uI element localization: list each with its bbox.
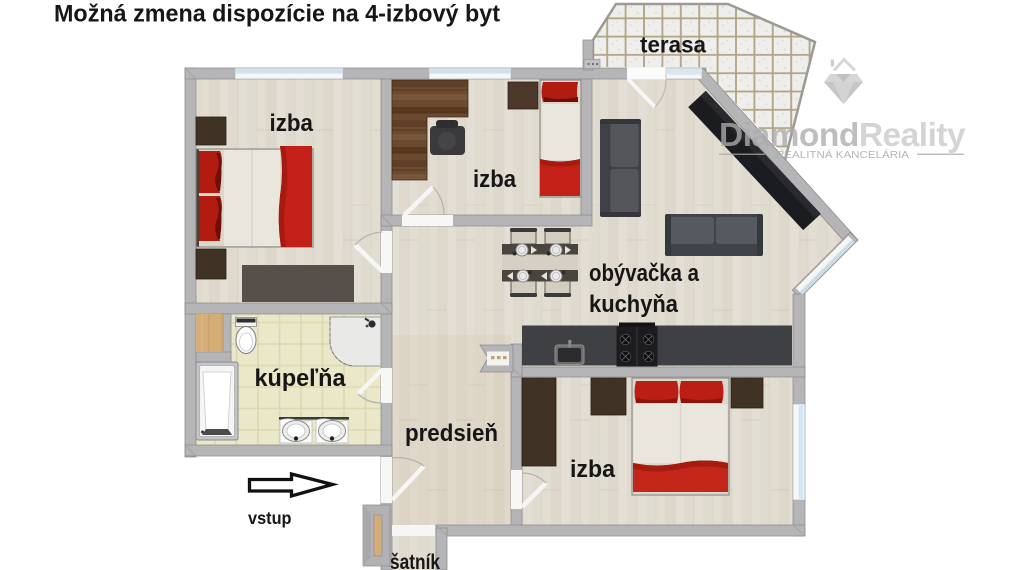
- svg-text:REALITNÁ KANCELÁRIA: REALITNÁ KANCELÁRIA: [776, 148, 909, 161]
- svg-text:šatník: šatník: [390, 551, 440, 570]
- svg-text:predsieň: predsieň: [405, 420, 498, 447]
- svg-text:izba: izba: [570, 456, 615, 483]
- svg-text:izba: izba: [270, 110, 314, 137]
- svg-text:izba: izba: [473, 166, 516, 193]
- svg-text:DiamondReality: DiamondReality: [719, 117, 966, 154]
- svg-text:Možná zmena dispozície na 4-iz: Možná zmena dispozície na 4-izbový byt: [54, 1, 500, 28]
- svg-text:vstup: vstup: [248, 508, 292, 528]
- svg-text:obývačka a: obývačka a: [589, 260, 699, 287]
- svg-text:kuchyňa: kuchyňa: [589, 291, 678, 318]
- svg-text:terasa: terasa: [640, 32, 707, 58]
- svg-text:kúpeľňa: kúpeľňa: [255, 365, 346, 392]
